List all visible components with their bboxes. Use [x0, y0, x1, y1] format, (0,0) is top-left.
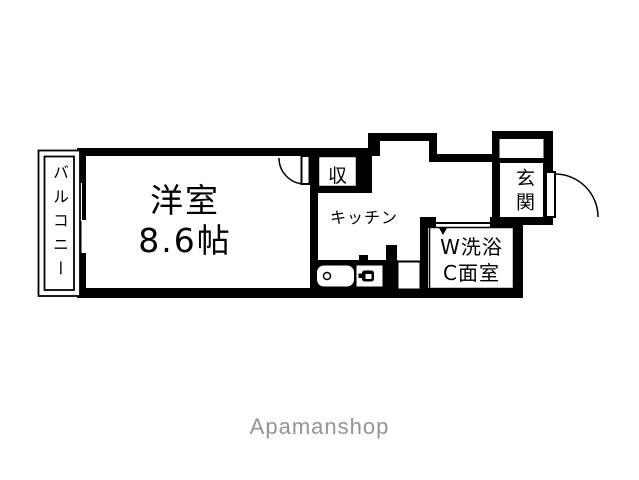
- watermark-text: Apamanshop: [0, 414, 639, 440]
- bathroom-label-line1: W洗浴: [429, 234, 514, 260]
- floorplan-drawing: [0, 0, 639, 480]
- stove-pot-inner: [366, 274, 372, 279]
- wall-kitchen-top-low: [429, 154, 500, 162]
- wall-kitchen-top-high: [368, 133, 437, 141]
- closet-label: 収: [318, 161, 357, 188]
- sink-icon: [317, 266, 354, 287]
- kitchen-partition-stub: [386, 245, 397, 261]
- room-door-leaf: [302, 156, 310, 184]
- entrance-label: 玄関: [514, 168, 533, 216]
- kitchen-label: キッチン: [330, 210, 398, 226]
- bathroom-label: W洗浴 C面室: [429, 234, 514, 286]
- western-room-label-block: 洋室 8.6帖: [105, 181, 265, 261]
- entrance-shoebox: [500, 139, 544, 158]
- washroom-door-line: [436, 222, 490, 224]
- floorplan-image: バルコニー 洋室 8.6帖 収 キッチン 玄関 W洗浴 C面室 Apamansh…: [0, 0, 639, 480]
- window-pane-lower: [82, 220, 87, 253]
- western-room-size: 8.6帖: [105, 221, 265, 261]
- sink-drain-icon: [324, 273, 331, 280]
- bathroom-label-line2: C面室: [429, 260, 514, 286]
- stove-pot-handle: [359, 274, 363, 279]
- balcony-label: バルコニー: [51, 164, 67, 284]
- wall-bottom: [77, 288, 523, 298]
- entrance-door-arc: [555, 174, 598, 217]
- kitchen-faucet-icon: [359, 255, 368, 261]
- appliance-space: [398, 262, 421, 290]
- western-room-label: 洋室: [105, 181, 265, 221]
- entrance-door-leaf: [546, 172, 555, 217]
- wall-washroom-right: [513, 217, 523, 298]
